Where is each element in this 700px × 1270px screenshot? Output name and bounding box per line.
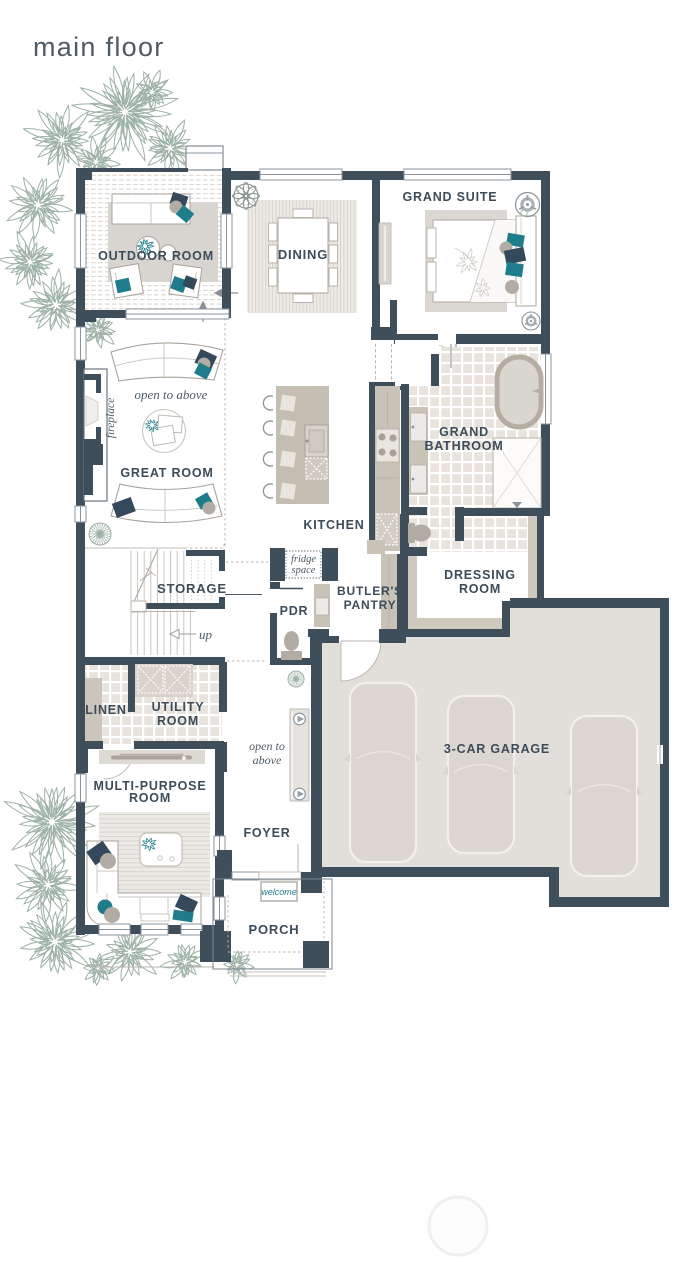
svg-text:GRAND SUITE: GRAND SUITE bbox=[403, 190, 498, 204]
svg-text:DRESSING: DRESSING bbox=[444, 568, 516, 582]
svg-text:welcome: welcome bbox=[261, 887, 297, 897]
svg-text:ROOM: ROOM bbox=[129, 791, 171, 805]
svg-text:PDR: PDR bbox=[280, 604, 309, 618]
svg-text:UTILITY: UTILITY bbox=[152, 700, 205, 714]
svg-text:BATHROOM: BATHROOM bbox=[424, 439, 503, 453]
svg-text:main floor: main floor bbox=[33, 32, 165, 62]
svg-text:PANTRY: PANTRY bbox=[344, 598, 397, 612]
svg-text:3-CAR GARAGE: 3-CAR GARAGE bbox=[444, 742, 550, 756]
svg-text:fireplace: fireplace bbox=[105, 398, 117, 438]
svg-text:DINING: DINING bbox=[278, 247, 328, 262]
svg-text:KITCHEN: KITCHEN bbox=[303, 518, 364, 532]
svg-text:ROOM: ROOM bbox=[157, 714, 199, 728]
svg-text:above: above bbox=[253, 753, 282, 767]
svg-text:ROOM: ROOM bbox=[459, 582, 501, 596]
svg-text:GRAND: GRAND bbox=[439, 425, 489, 439]
svg-text:fridge: fridge bbox=[291, 554, 316, 565]
svg-text:OUTDOOR ROOM: OUTDOOR ROOM bbox=[98, 249, 214, 263]
svg-text:up: up bbox=[199, 627, 213, 642]
svg-text:FOYER: FOYER bbox=[243, 826, 290, 840]
svg-text:STORAGE: STORAGE bbox=[157, 581, 227, 596]
svg-text:open to above: open to above bbox=[135, 387, 208, 402]
svg-text:LINEN: LINEN bbox=[85, 703, 127, 717]
svg-text:GREAT ROOM: GREAT ROOM bbox=[120, 466, 213, 480]
svg-text:open to: open to bbox=[249, 739, 285, 753]
svg-text:BUTLER'S: BUTLER'S bbox=[337, 584, 403, 598]
svg-text:PORCH: PORCH bbox=[249, 922, 300, 937]
svg-text:space: space bbox=[292, 565, 316, 576]
